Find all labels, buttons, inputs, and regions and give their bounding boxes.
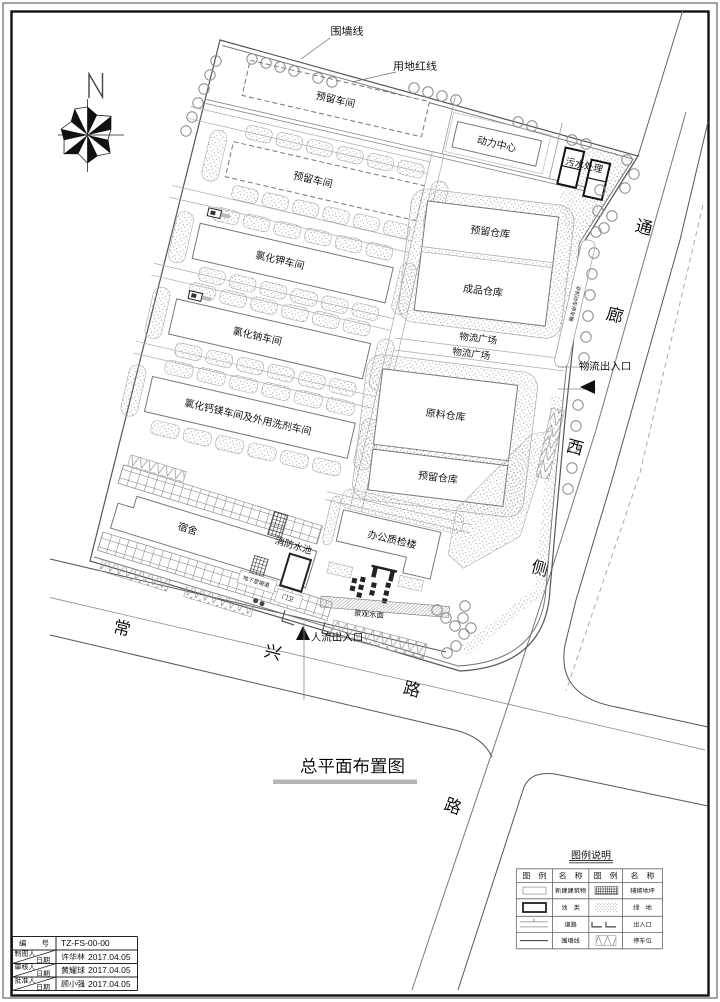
svg-text:TZ-FS-00-00: TZ-FS-00-00 [61,938,110,948]
svg-text:2017.04.05: 2017.04.05 [88,952,131,962]
svg-text:2017.04.05: 2017.04.05 [88,965,131,975]
svg-text:2017.04.05: 2017.04.05 [88,979,131,989]
